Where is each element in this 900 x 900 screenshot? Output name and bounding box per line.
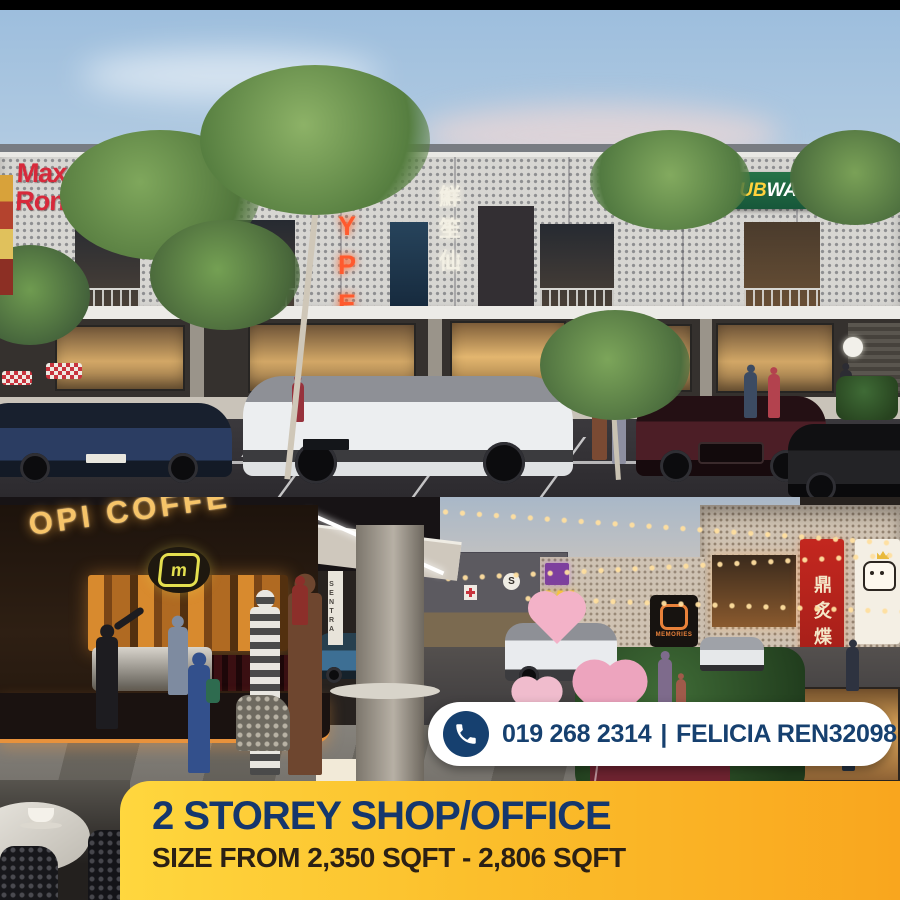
pole-banner-text: SENTRA bbox=[328, 581, 335, 635]
property-poster: Max Ronald's HYPE 鮮笙仙 DUBWAY bbox=[0, 0, 900, 900]
phone-icon bbox=[443, 711, 489, 757]
shrub bbox=[836, 376, 898, 420]
foreground-cafe-corner bbox=[0, 780, 130, 900]
license-plate bbox=[303, 439, 349, 450]
phone-icon-glyph bbox=[453, 721, 479, 747]
balcony-opening bbox=[744, 222, 820, 314]
canopy-fascia bbox=[0, 306, 900, 319]
column bbox=[700, 319, 712, 397]
wicker-chair-dark bbox=[0, 846, 58, 900]
m-logo-box: m bbox=[157, 553, 201, 587]
info-banner: 2 STOREY SHOP/OFFICE SIZE FROM 2,350 SQF… bbox=[120, 781, 900, 900]
black-car bbox=[788, 424, 900, 497]
pole-banner: SENTRA bbox=[328, 571, 343, 645]
menu-board-sliver bbox=[0, 175, 13, 295]
tree-canopy bbox=[200, 65, 430, 215]
car-wheel bbox=[660, 450, 692, 482]
car-wheel bbox=[483, 442, 525, 484]
cafe-table bbox=[330, 683, 440, 699]
navy-sedan bbox=[0, 403, 232, 477]
memories-text: MEMORIES bbox=[656, 632, 693, 638]
m-logo-sign: m bbox=[148, 547, 210, 593]
pedestrian bbox=[768, 374, 780, 418]
car-wheel bbox=[168, 453, 198, 483]
pedestrian bbox=[846, 647, 859, 691]
barista-waving bbox=[96, 637, 118, 729]
top-photo: Max Ronald's HYPE 鮮笙仙 DUBWAY bbox=[0, 10, 900, 497]
license-plate bbox=[86, 454, 126, 463]
tree-canopy bbox=[150, 220, 300, 330]
wicker-chair bbox=[236, 695, 290, 751]
chinese-neon-text: 鮮笙仙 bbox=[436, 185, 461, 281]
banner-subtitle: SIZE FROM 2,350 SQFT - 2,806 SQFT bbox=[152, 842, 900, 874]
m-logo-text: m bbox=[170, 561, 188, 579]
tree-canopy bbox=[540, 310, 690, 420]
child bbox=[292, 585, 308, 625]
column bbox=[190, 319, 204, 397]
column-large bbox=[356, 525, 424, 815]
coffee-saucer bbox=[20, 822, 62, 829]
car-wheel bbox=[806, 472, 836, 497]
coffee-cup bbox=[28, 808, 54, 822]
agent-name: FELICIA REN32098 bbox=[676, 720, 897, 749]
contact-text: 019 268 2314 | FELICIA REN32098 bbox=[502, 720, 897, 749]
toast-face-icon bbox=[870, 571, 874, 575]
banner-title: 2 STOREY SHOP/OFFICE bbox=[152, 794, 900, 838]
blonde-customer bbox=[168, 627, 188, 695]
car-grille bbox=[698, 442, 764, 464]
glass-panel bbox=[390, 222, 428, 314]
outdoor-table-checkered bbox=[2, 371, 32, 385]
balcony-opening bbox=[540, 224, 614, 314]
outdoor-table-checkered bbox=[46, 363, 82, 379]
entry-recess bbox=[478, 206, 534, 314]
white-sedan-distant bbox=[700, 637, 764, 671]
contact-divider: | bbox=[660, 720, 667, 749]
car-wheel bbox=[20, 453, 50, 483]
phone-number: 019 268 2314 bbox=[502, 720, 651, 749]
round-shop-sign bbox=[843, 337, 863, 357]
tree-canopy bbox=[590, 130, 750, 230]
backpack bbox=[206, 679, 220, 703]
chinese-neon-sign: 鮮笙仙 bbox=[432, 185, 464, 315]
contact-pill: 019 268 2314 | FELICIA REN32098 bbox=[428, 702, 893, 766]
pedestrian bbox=[744, 372, 757, 418]
shopfront-cafe bbox=[55, 325, 185, 391]
